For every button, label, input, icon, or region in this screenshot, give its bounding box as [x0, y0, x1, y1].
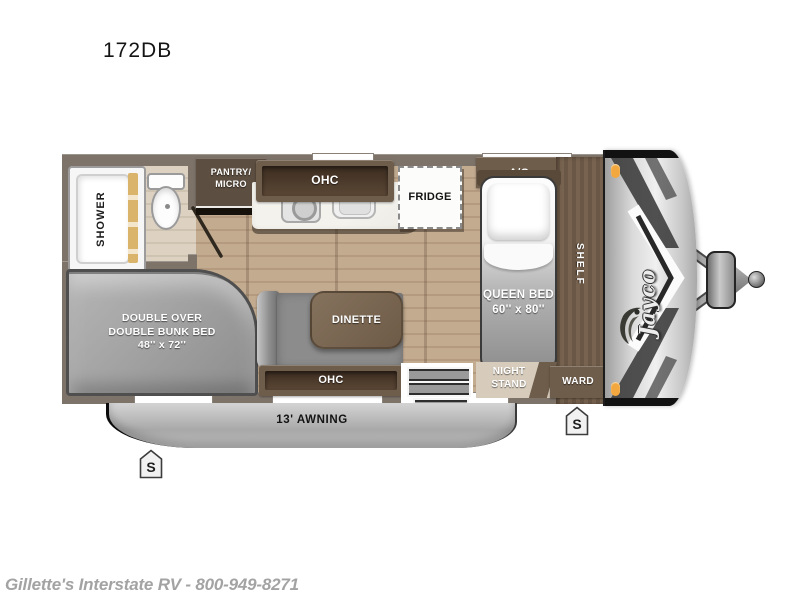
wardrobe-label: WARD: [550, 375, 606, 388]
dinette-table: DINETTE: [310, 291, 403, 349]
marker-light-bottom: [611, 382, 620, 396]
marker-light-top: [611, 164, 620, 178]
stabilizer-letter: S: [572, 416, 581, 432]
queen-bed: QUEEN BED 60'' x 80'': [480, 176, 557, 372]
queen-bed-pillow: [488, 184, 549, 240]
shower-label: SHOWER: [94, 176, 108, 262]
wardrobe: WARD: [550, 366, 606, 398]
floorplan-page: 172DB SHOWER PANTRY/ MICRO: [0, 0, 800, 600]
dinette-label: DINETTE: [332, 313, 381, 327]
fridge-label: FRIDGE: [408, 191, 451, 205]
stabilizer-jack-right: S: [565, 406, 589, 436]
awning: 13' AWNING: [106, 403, 517, 448]
shower-door: [128, 173, 138, 263]
propane-tank-cover: [706, 251, 736, 309]
shelf-label: SHELF: [573, 243, 586, 286]
kitchen-ohc-label: OHC: [311, 173, 339, 189]
model-number: 172DB: [103, 38, 172, 64]
awning-label: 13' AWNING: [109, 413, 515, 427]
front-cap: Jayco: [603, 150, 697, 406]
toilet-bowl: [151, 186, 181, 230]
toilet: [147, 173, 185, 231]
kitchen-overhead-cabinet: OHC: [256, 160, 394, 202]
night-stand: NIGHT STAND: [476, 362, 552, 398]
stabilizer-letter: S: [146, 459, 155, 475]
stabilizer-jack-left: S: [139, 449, 163, 479]
hitch-ball-icon: [748, 271, 765, 288]
bunk-bed: DOUBLE OVER DOUBLE BUNK BED 48'' x 72'': [66, 269, 258, 396]
dinette-ohc-label: OHC: [318, 373, 343, 387]
dealer-footer: Gillette's Interstate RV - 800-949-8271: [5, 574, 299, 595]
jayco-bird-icon: [615, 300, 647, 360]
queen-bed-sheet-fold: [484, 244, 553, 270]
entry-step-2: [407, 381, 471, 397]
bunk-bed-label: DOUBLE OVER DOUBLE BUNK BED 48'' x 72'': [108, 312, 215, 353]
queen-bed-label: QUEEN BED 60'' x 80'': [482, 288, 555, 318]
dinette-overhead-cabinet: OHC: [259, 365, 403, 396]
fridge: FRIDGE: [398, 166, 462, 229]
shower: SHOWER: [68, 166, 146, 272]
dinette-bench-back: [257, 291, 279, 369]
